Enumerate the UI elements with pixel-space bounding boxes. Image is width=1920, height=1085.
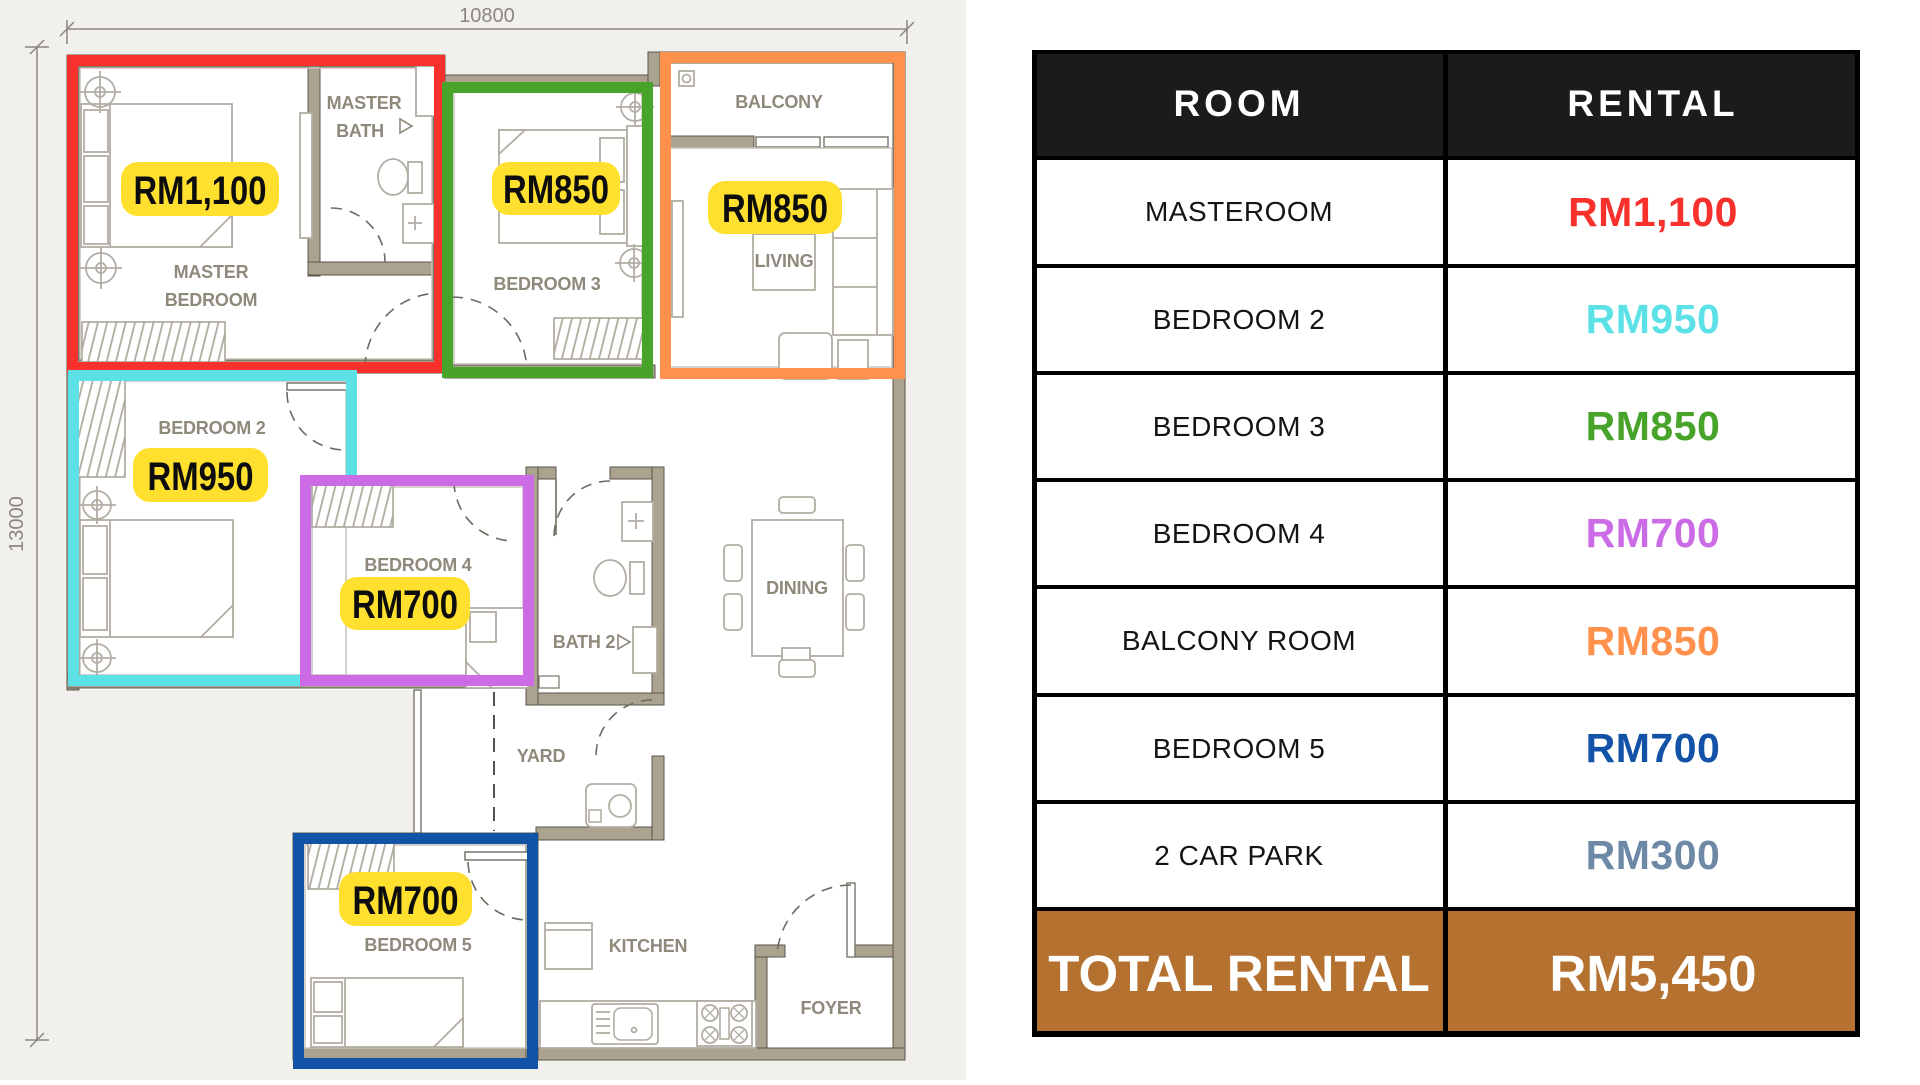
svg-text:13000: 13000 [6, 496, 28, 552]
svg-text:BATH 2: BATH 2 [553, 632, 616, 652]
svg-text:LIVING: LIVING [755, 251, 814, 271]
svg-text:MASTER: MASTER [327, 93, 402, 113]
svg-text:BEDROOM 2: BEDROOM 2 [158, 418, 265, 438]
svg-text:BALCONY: BALCONY [735, 92, 823, 112]
svg-text:FOYER: FOYER [800, 998, 861, 1018]
svg-text:RM950: RM950 [148, 455, 254, 499]
svg-text:BEDROOM 5: BEDROOM 5 [364, 935, 471, 955]
svg-text:MASTER: MASTER [174, 262, 249, 282]
svg-text:YARD: YARD [517, 746, 566, 766]
svg-text:BEDROOM 4: BEDROOM 4 [364, 555, 471, 575]
svg-text:RM700: RM700 [352, 583, 458, 627]
svg-text:RM850: RM850 [722, 187, 828, 231]
svg-text:RM850: RM850 [503, 168, 609, 212]
svg-text:KITCHEN: KITCHEN [609, 936, 688, 956]
svg-text:BATH: BATH [336, 121, 384, 141]
svg-text:RM700: RM700 [353, 879, 459, 923]
svg-text:BEDROOM: BEDROOM [165, 290, 258, 310]
svg-text:BEDROOM 3: BEDROOM 3 [493, 274, 600, 294]
svg-text:RM1,100: RM1,100 [134, 169, 267, 213]
svg-text:DINING: DINING [766, 578, 828, 598]
svg-text:10800: 10800 [459, 5, 515, 27]
